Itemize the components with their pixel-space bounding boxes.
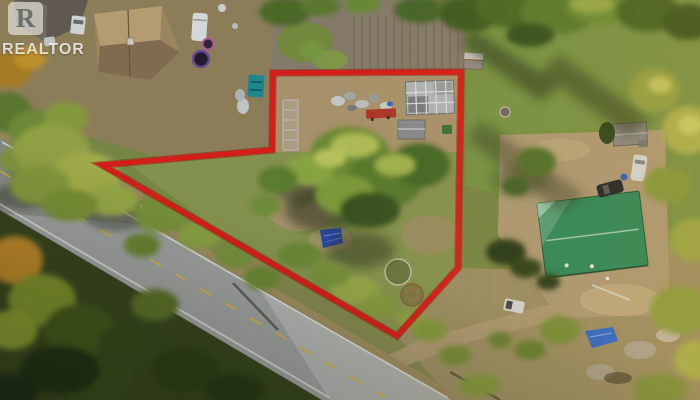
aerial-photo-scene — [0, 0, 700, 400]
photo-grain — [0, 0, 700, 400]
aerial-property-photo: R REALTOR — [0, 0, 700, 400]
